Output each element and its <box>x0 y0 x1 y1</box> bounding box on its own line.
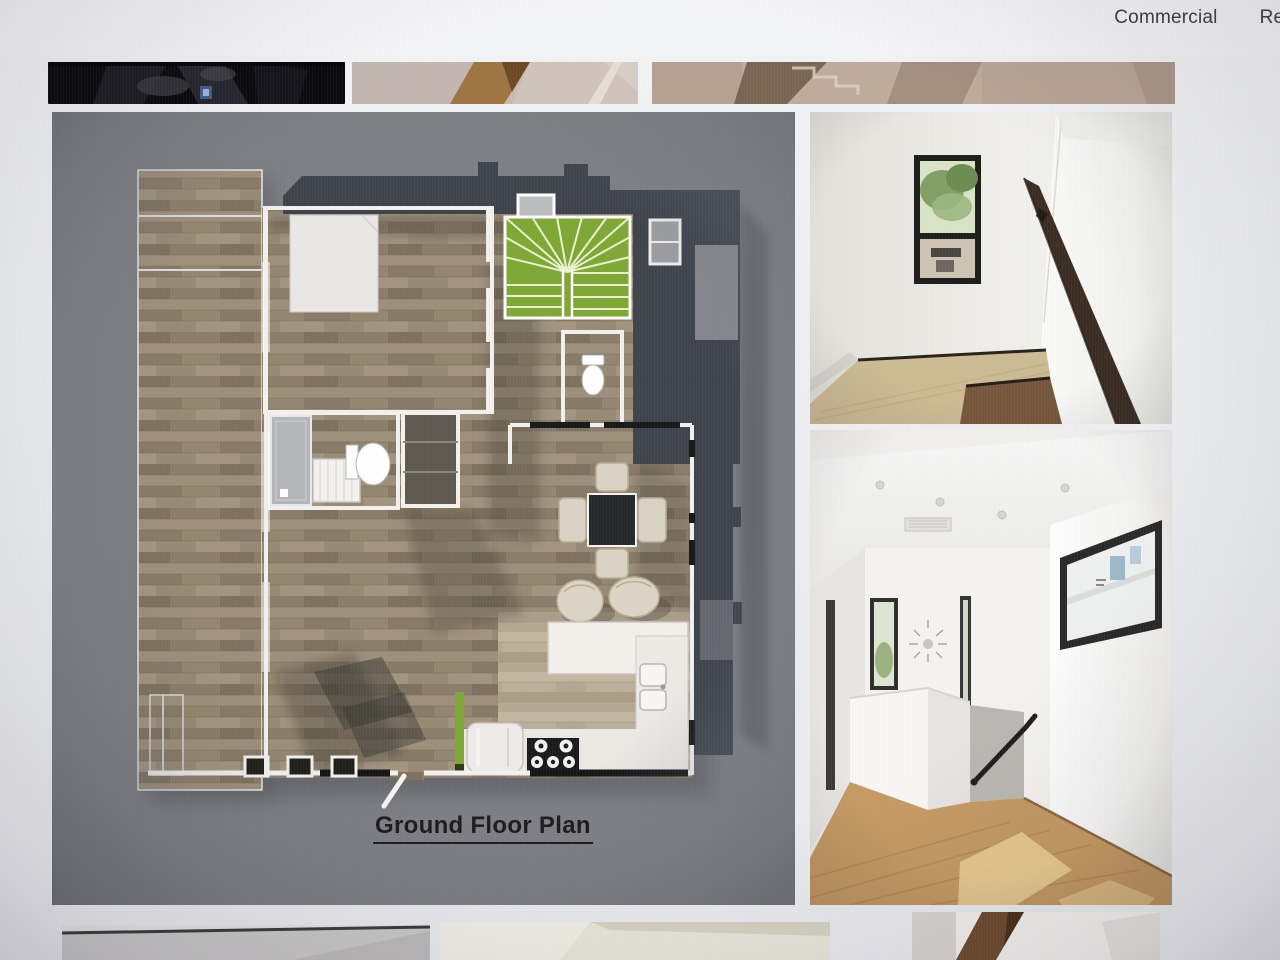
nav-residential-clipped[interactable]: Res <box>1260 7 1280 29</box>
main-nav: Commercial Res <box>1114 1 1280 35</box>
cream-interior-thumbnail-image <box>440 922 830 960</box>
photo-vignette <box>810 112 1172 424</box>
thumbnail-grey-wall[interactable] <box>62 925 430 960</box>
stair-landing-photo[interactable] <box>810 112 1172 424</box>
hallway-scene <box>810 430 1172 905</box>
thumbnail-dark-interior[interactable] <box>48 62 345 104</box>
grey-wall-thumbnail-image <box>62 925 430 960</box>
page-header: Commercial Res <box>0 0 1280 56</box>
thumbnail-carpet-stairs[interactable] <box>352 62 638 104</box>
thumbnail-cream-interior[interactable] <box>440 922 830 960</box>
gallery-page: Commercial Res <box>0 0 1280 960</box>
photo-vignette <box>810 430 1172 905</box>
carpet-stairs-thumbnail-image <box>352 62 638 104</box>
dark-interior-thumbnail-image <box>48 62 345 104</box>
stair-landing-scene <box>810 112 1172 424</box>
nav-commercial[interactable]: Commercial <box>1114 7 1217 29</box>
thumbnail-stairwell-wall[interactable] <box>652 62 1175 104</box>
floor-plan-drawing <box>52 112 795 905</box>
thumbnail-stair-rail[interactable] <box>912 912 1160 960</box>
stair-rail-thumbnail-image <box>912 912 1160 960</box>
plan-caption: Ground Floor Plan <box>373 812 593 844</box>
ground-floor-plan-image[interactable]: Ground Floor Plan <box>52 112 795 905</box>
stairwell-thumbnail-image <box>652 62 1175 104</box>
plan-vignette <box>52 112 795 905</box>
hallway-photo[interactable] <box>810 430 1172 905</box>
